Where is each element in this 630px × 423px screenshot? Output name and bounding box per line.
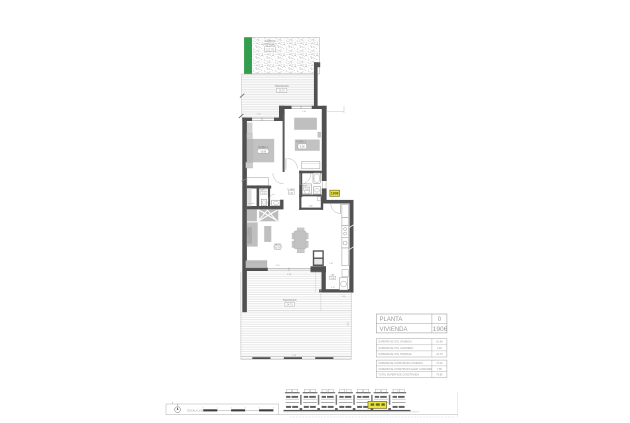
svg-text:PRIVADO: PRIVADO — [263, 43, 276, 47]
svg-text:2: 2 — [231, 407, 232, 409]
svg-text:2.96: 2.96 — [302, 111, 306, 113]
svg-text:0: 0 — [203, 407, 204, 409]
svg-text:10.85: 10.85 — [260, 151, 266, 153]
svg-text:24.05: 24.05 — [275, 248, 281, 250]
svg-text:BAÑO 2: BAÑO 2 — [303, 184, 311, 187]
svg-text:24.70: 24.70 — [436, 353, 443, 356]
svg-text:D. PASO: D. PASO — [287, 188, 295, 191]
svg-text:1.70: 1.70 — [257, 113, 261, 115]
svg-text:8.06: 8.06 — [300, 147, 305, 149]
svg-text:117.70: 117.70 — [266, 47, 275, 51]
svg-text:2.40: 2.40 — [331, 278, 335, 280]
svg-text:24.70: 24.70 — [286, 304, 293, 307]
svg-text:2.40: 2.40 — [329, 263, 333, 265]
svg-text:VIVIENDA: VIVIENDA — [380, 327, 408, 333]
svg-text:1906: 1906 — [433, 326, 448, 333]
svg-text:BAÑO 1: BAÑO 1 — [260, 189, 268, 192]
svg-text:SUPERFICIE UTIL TERRAZA: SUPERFICIE UTIL TERRAZA — [378, 353, 412, 356]
svg-text:SUPERFICIE UTIL VIVIENDA: SUPERFICIE UTIL VIVIENDA — [378, 341, 412, 344]
svg-text:PLANTA: PLANTA — [380, 317, 403, 323]
svg-text:5: 5 — [273, 407, 274, 409]
svg-text:4: 4 — [259, 407, 260, 409]
svg-text:SUPERFICIE CONSTRUIDA VIVIENDA: SUPERFICIE CONSTRUIDA VIVIENDA — [378, 362, 423, 365]
svg-text:7.85: 7.85 — [437, 368, 442, 371]
svg-text:72.00: 72.00 — [436, 362, 443, 365]
svg-text:SUPERFICIE UTIL LAVADERO: SUPERFICIE UTIL LAVADERO — [378, 347, 413, 350]
svg-text:1.60: 1.60 — [342, 296, 346, 298]
svg-text:SUPERFICIE CONSTRUIDA ELEM. CO: SUPERFICIE CONSTRUIDA ELEM. COMUNES — [378, 368, 432, 371]
svg-text:5.55: 5.55 — [347, 322, 349, 326]
svg-text:1: 1 — [217, 407, 218, 409]
svg-text:26.70: 26.70 — [279, 90, 286, 93]
svg-text:TOTAL SUPERFICIE CONSTRUIDA: TOTAL SUPERFICIE CONSTRUIDA — [378, 374, 419, 377]
svg-text:4.70: 4.70 — [276, 265, 280, 267]
svg-text:LAV.: LAV. — [331, 273, 335, 276]
svg-text:3: 3 — [245, 407, 246, 409]
svg-text:62.58: 62.58 — [436, 341, 443, 344]
svg-text:TERRAZA: TERRAZA — [275, 84, 289, 88]
svg-text:JARDIN: JARDIN — [265, 39, 276, 43]
svg-text:1906: 1906 — [331, 192, 339, 196]
svg-text:SALON: SALON — [274, 243, 281, 246]
svg-text:DORM. 2: DORM. 2 — [296, 141, 306, 143]
svg-text:TERRAZA: TERRAZA — [283, 298, 297, 302]
svg-text:3.70: 3.70 — [331, 287, 335, 289]
svg-text:79.85: 79.85 — [436, 374, 443, 377]
svg-text:2.40: 2.40 — [437, 347, 442, 350]
